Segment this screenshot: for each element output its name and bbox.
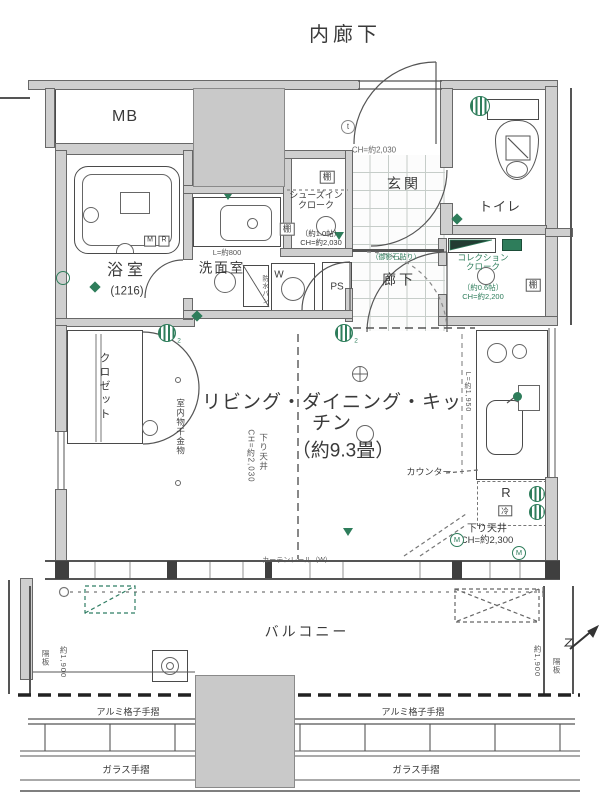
sic-ch-label: CH=約2,030	[300, 239, 341, 247]
ps-label: PS	[330, 282, 343, 293]
vent-fan-icon	[335, 324, 353, 342]
wedge-shelf-icon	[450, 240, 492, 250]
washlet-icon	[470, 96, 490, 116]
faucet-icon	[513, 392, 522, 401]
bath-size-label: (1216)	[110, 286, 143, 299]
shelf-sc-label: 棚	[526, 279, 541, 292]
m2-label: M	[512, 546, 526, 560]
mb-label: MB	[112, 108, 138, 126]
ldk-size-label: （約9.3畳）	[292, 442, 394, 463]
bath-stool	[83, 207, 99, 223]
sc-ch-label: CH=約2,200	[462, 293, 503, 301]
depth-l-label: 約1,900	[59, 646, 67, 678]
basin-drain	[247, 218, 258, 229]
window-stub	[545, 561, 560, 579]
basin-len-label: L=約800	[213, 249, 242, 257]
alum-l-label: アルミ格子手摺	[97, 708, 160, 718]
shelf-sic-label: 棚	[320, 171, 335, 184]
sic-name-label: シューズイン クローク	[289, 191, 343, 211]
fridge-outlet-1	[529, 486, 545, 502]
counter-label: カウンター	[406, 468, 451, 478]
towel-ring-icon	[56, 271, 70, 285]
balcony-pillar	[195, 675, 295, 788]
window-stub	[452, 561, 462, 579]
partition-l-label: 隔板	[41, 650, 49, 667]
washroom-label: 洗面室	[199, 262, 246, 277]
inner-corridor-label: 内廊下	[309, 24, 381, 46]
sc-size-label: （約0.6帖）	[463, 284, 503, 292]
sc-badge	[502, 239, 522, 251]
entrance-ch-label: CH=約2,030	[352, 147, 396, 156]
fridge-r-label: R	[501, 486, 510, 500]
floor-plan: 内廊下MBCH=約2,030玄関（御影石貼り）トイレ棚シューズイン クローク（約…	[0, 0, 600, 800]
m1-label: M	[450, 533, 464, 547]
soffit1-ch-label: CH=約2,030	[246, 429, 255, 482]
shaft-gray-block	[193, 88, 285, 187]
balcony-label: バルコニー	[265, 624, 350, 639]
w-tag-label: W	[274, 270, 283, 281]
burner-left	[487, 343, 507, 363]
down-arrow-icon	[343, 528, 353, 536]
tag-r-label: R	[158, 236, 169, 247]
bath-label: 浴室	[107, 262, 147, 280]
fridge-outlet-2	[529, 504, 545, 520]
closer-t-label: t	[341, 120, 355, 134]
entrance-note-label: （御影石貼り）	[372, 254, 421, 262]
hallway-label: 廊下	[382, 272, 416, 287]
downlight	[142, 420, 158, 436]
laundry-hook	[175, 480, 181, 486]
alum-r-label: アルミ格子手摺	[382, 708, 445, 718]
tag-m-label: M	[144, 236, 156, 247]
kitchen-len-label: L=約1,950	[463, 372, 471, 413]
laundry-hook	[175, 377, 181, 383]
window-stub	[167, 561, 177, 579]
vent2-sub-label: 2	[354, 337, 358, 344]
toilet-seat	[506, 161, 528, 178]
sc-name-label: コレクション クローク	[457, 254, 508, 273]
laundry-label: 室内物干金物	[175, 399, 184, 456]
burner-right	[512, 344, 527, 359]
vent1-sub-label: 2	[177, 337, 181, 344]
toilet-label: トイレ	[479, 200, 521, 214]
w-sub-label: 防水パン	[260, 275, 267, 305]
north-arrow-icon	[565, 626, 598, 649]
soffit1-label: 下り天井	[258, 433, 267, 471]
depth-r-label: 約1,900	[533, 645, 541, 677]
sic-size-label: （約1.0帖）	[301, 230, 341, 238]
glass-l-label: ガラス手摺	[102, 766, 149, 776]
vent-fan-icon	[158, 324, 176, 342]
partition-r-label: 隔板	[552, 658, 560, 675]
glass-r-label: ガラス手摺	[392, 766, 439, 776]
down-arrow-icon	[224, 194, 232, 200]
fridge-cold-label: 冷	[498, 505, 512, 516]
shelf-mid-label: 棚	[280, 223, 295, 236]
closet-label: クロゼット	[98, 352, 110, 422]
entrance-label: 玄関	[387, 176, 421, 191]
soffit2-label: 下り天井	[467, 524, 507, 535]
soffit2-ch-label: CH=約2,300	[461, 536, 514, 546]
drain-pipe-inner	[166, 662, 174, 670]
washer-drum	[281, 277, 305, 301]
rail-note-label: カーテンレール（W）	[262, 557, 332, 565]
downlight	[352, 366, 368, 382]
ldk-label: リビング・ダイニング・キッチン	[198, 393, 466, 435]
window-stub	[55, 561, 69, 579]
